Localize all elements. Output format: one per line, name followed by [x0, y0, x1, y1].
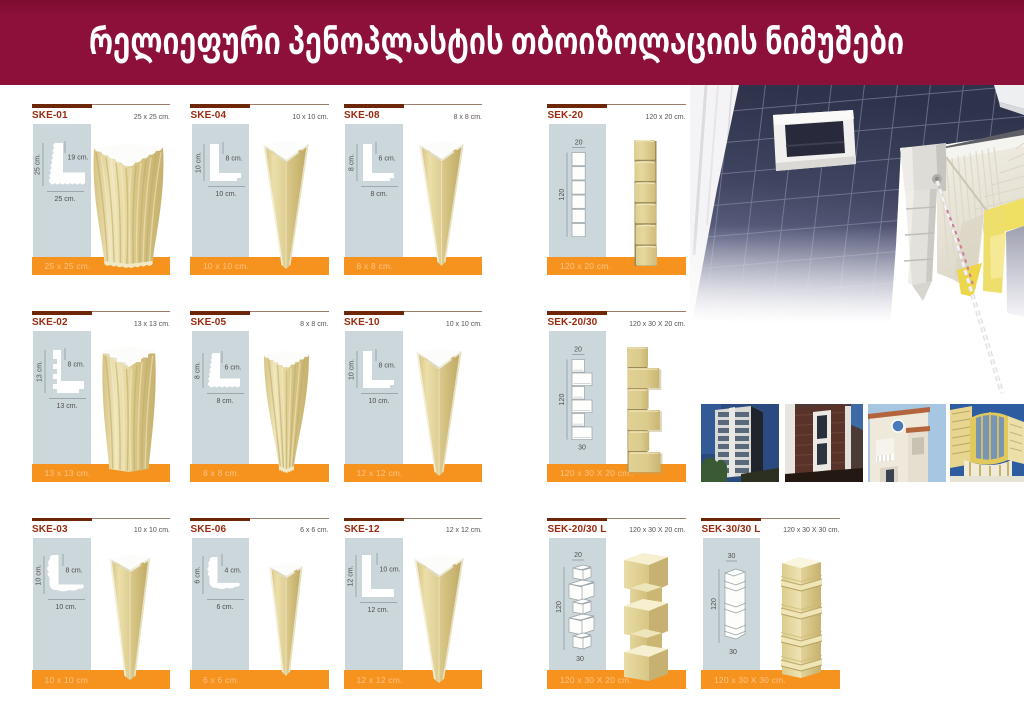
- svg-text:13 cm.: 13 cm.: [56, 403, 77, 410]
- svg-text:120: 120: [711, 598, 718, 610]
- svg-text:30: 30: [727, 553, 735, 560]
- svg-text:19 cm.: 19 cm.: [68, 155, 89, 162]
- svg-text:8 cm.: 8 cm.: [225, 156, 242, 163]
- svg-text:10 cm.: 10 cm.: [368, 398, 389, 405]
- svg-text:12 cm.: 12 cm.: [367, 607, 388, 614]
- svg-text:120: 120: [556, 601, 563, 613]
- svg-text:6 cm.: 6 cm.: [379, 156, 396, 163]
- svg-text:8 cm.: 8 cm.: [216, 398, 233, 405]
- svg-text:8 cm.: 8 cm.: [68, 362, 85, 369]
- svg-text:20: 20: [574, 347, 582, 354]
- svg-text:8 cm.: 8 cm.: [194, 362, 201, 379]
- svg-text:20: 20: [574, 552, 582, 559]
- svg-text:8 cm.: 8 cm.: [379, 363, 396, 370]
- svg-text:12 cm.: 12 cm.: [348, 565, 355, 586]
- svg-text:30: 30: [576, 656, 584, 663]
- svg-text:25 cm.: 25 cm.: [54, 196, 75, 203]
- svg-text:8 cm.: 8 cm.: [370, 191, 387, 198]
- svg-text:10 cm.: 10 cm.: [215, 191, 236, 198]
- svg-text:30: 30: [578, 445, 586, 452]
- svg-text:10 cm.: 10 cm.: [380, 566, 401, 573]
- svg-text:20: 20: [574, 140, 582, 147]
- svg-text:4 cm.: 4 cm.: [224, 567, 241, 574]
- svg-text:10 cm.: 10 cm.: [349, 359, 356, 380]
- svg-text:6 cm.: 6 cm.: [224, 365, 241, 372]
- svg-text:120: 120: [559, 189, 566, 201]
- svg-text:10 cm.: 10 cm.: [195, 152, 202, 173]
- svg-text:6 cm.: 6 cm.: [216, 604, 233, 611]
- svg-text:13 cm.: 13 cm.: [37, 361, 44, 382]
- svg-text:25 cm.: 25 cm.: [35, 154, 42, 175]
- svg-text:30: 30: [729, 649, 737, 656]
- svg-text:120: 120: [559, 394, 566, 406]
- svg-text:10 cm.: 10 cm.: [36, 564, 43, 585]
- svg-text:8 cm.: 8 cm.: [66, 567, 83, 574]
- svg-text:8 cm.: 8 cm.: [349, 154, 356, 171]
- svg-text:10 cm.: 10 cm.: [55, 604, 76, 611]
- svg-text:6 cm.: 6 cm.: [194, 566, 201, 583]
